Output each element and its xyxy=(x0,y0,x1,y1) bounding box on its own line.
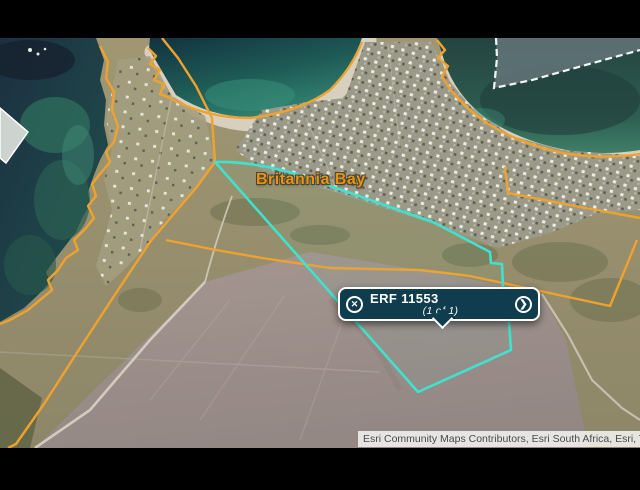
popup-title: ERF 11553 xyxy=(370,292,511,306)
popup-close-button[interactable]: ✕ xyxy=(346,296,363,313)
attribution-bar: Esri Community Maps Contributors, Esri S… xyxy=(358,431,640,447)
popup-next-button[interactable]: ❯ xyxy=(515,296,532,313)
feature-popup: ✕ ERF 11553 (1 of 1) ❯ xyxy=(338,287,540,321)
map-viewport[interactable] xyxy=(0,38,640,448)
app-window: Britannia Bay ✕ ERF 11553 (1 of 1) ❯ Esr… xyxy=(0,0,640,490)
satellite-basemap xyxy=(0,38,640,448)
